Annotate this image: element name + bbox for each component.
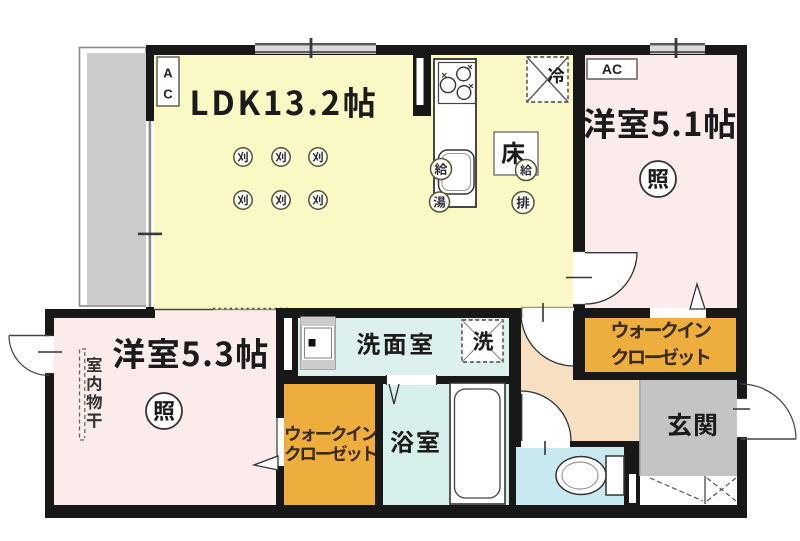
svg-text:AC: AC bbox=[602, 61, 622, 77]
svg-text:A: A bbox=[163, 66, 173, 81]
svg-text:C: C bbox=[163, 87, 173, 102]
